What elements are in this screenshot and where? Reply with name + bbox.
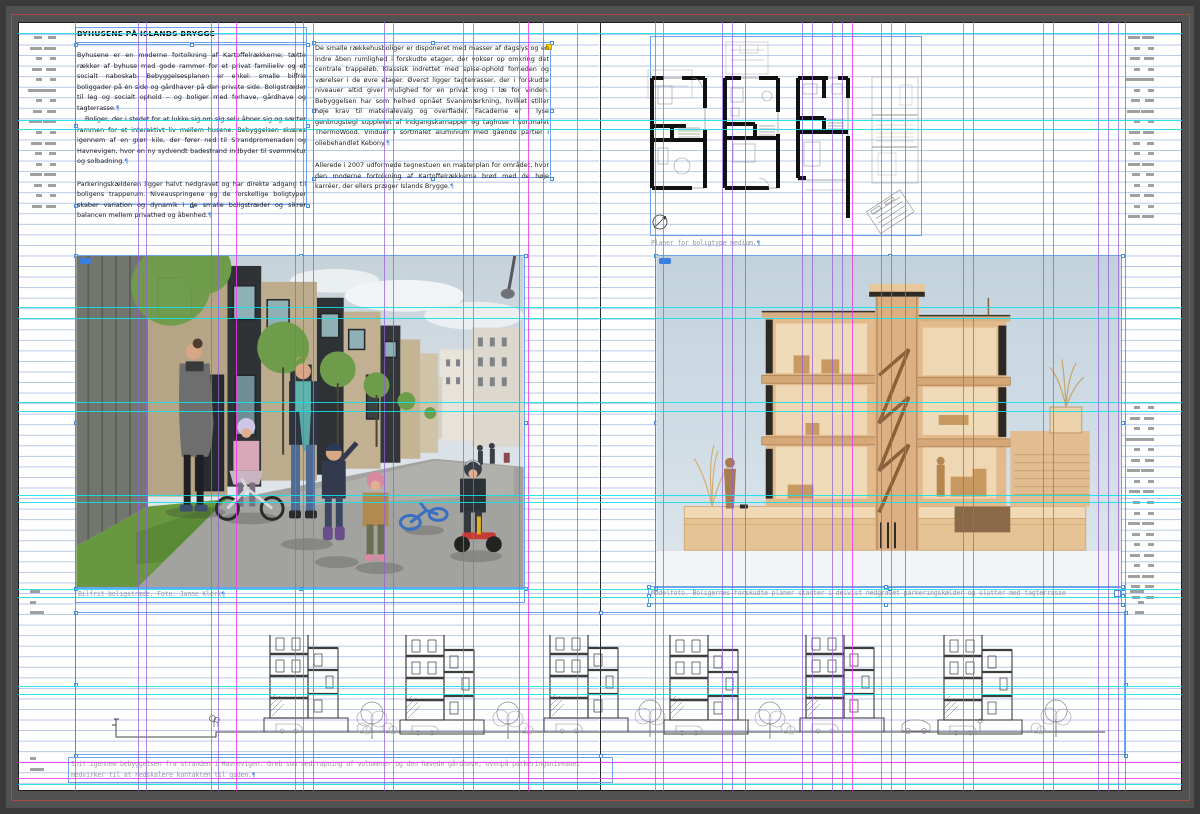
ruler-guide-vertical[interactable] <box>905 22 906 791</box>
body-text-col1[interactable]: Byhusene er en moderne fortolkning af Ka… <box>77 50 306 222</box>
marginalia-text-line <box>44 173 56 176</box>
marginalia-text-line <box>1148 184 1154 187</box>
ruler-guide-vertical[interactable] <box>295 22 296 791</box>
link-badge-right-photo[interactable] <box>659 258 671 264</box>
ruler-guide-vertical[interactable] <box>577 22 578 791</box>
ruler-guide-vertical[interactable] <box>211 22 212 791</box>
ruler-guide-vertical[interactable] <box>519 22 520 791</box>
ruler-guide-vertical[interactable] <box>812 22 813 791</box>
marginalia-text-line <box>1134 427 1140 430</box>
marginalia-text-line <box>1131 459 1140 462</box>
frame-selection-handle[interactable] <box>306 204 310 208</box>
marginalia-text-line <box>49 152 56 155</box>
marginalia-text-line <box>1144 417 1154 420</box>
ruler-guide-vertical[interactable] <box>303 22 304 791</box>
ruler-guide-horizontal[interactable] <box>18 694 1182 695</box>
ruler-guide-horizontal[interactable] <box>18 318 1182 319</box>
marginalia-text-line <box>30 47 42 50</box>
marginalia-text-line <box>1134 512 1140 515</box>
marginalia-text-line <box>36 163 42 166</box>
marginalia-text-line <box>28 89 42 92</box>
marginalia-text-line <box>1126 78 1140 81</box>
marginalia-text-line <box>1126 438 1140 441</box>
body-paragraph: Boliger, der i stedet for at lukke sig o… <box>77 114 306 168</box>
frame-selection-handle[interactable] <box>599 611 603 615</box>
marginalia-text-line <box>1132 533 1140 536</box>
marginalia-text-line <box>1144 554 1154 557</box>
body-paragraph: Parkeringskælderen ligger halvt nedgrave… <box>77 179 306 222</box>
section-elevation-drawing <box>110 635 1105 755</box>
marginalia-text-line <box>50 99 56 102</box>
ruler-guide-horizontal[interactable] <box>18 402 1182 403</box>
marginalia-text-line <box>1127 469 1140 472</box>
ruler-guide-vertical[interactable] <box>543 22 544 791</box>
marginalia-text-line <box>1127 110 1140 113</box>
ruler-guide-vertical[interactable] <box>313 22 314 791</box>
marginalia-text-line <box>1129 490 1140 493</box>
ruler-guide-horizontal[interactable] <box>18 762 1182 763</box>
marginalia-text-line <box>30 768 44 771</box>
frame-selection-handle[interactable] <box>190 43 194 47</box>
marginalia-text-line <box>1134 406 1140 409</box>
marginalia-text-line <box>1128 36 1140 39</box>
marginalia-text-line <box>50 78 56 81</box>
ruler-guide-vertical[interactable] <box>732 22 733 791</box>
caption-plans[interactable]: Planer for boligtype medium.¶ <box>651 239 911 247</box>
marginalia-text-line <box>1144 194 1154 197</box>
marginalia-text-line <box>1134 47 1140 50</box>
marginalia-text-line <box>1131 99 1140 102</box>
floor-plans-drawing <box>640 40 920 240</box>
ruler-guide-vertical[interactable] <box>138 22 139 791</box>
ruler-guide-horizontal[interactable] <box>18 33 1182 34</box>
ruler-guide-vertical[interactable] <box>842 22 843 791</box>
marginalia-text-line <box>50 163 56 166</box>
ruler-guide-vertical[interactable] <box>663 22 664 791</box>
marginalia-text-line <box>1141 469 1154 472</box>
marginalia-text-line <box>1143 131 1154 134</box>
marginalia-text-line <box>1134 184 1140 187</box>
marginalia-text-line <box>1146 173 1154 176</box>
marginalia-text-line <box>1128 163 1140 166</box>
ruler-guide-vertical[interactable] <box>722 22 723 791</box>
marginalia-text-line <box>36 194 42 197</box>
ruler-guide-vertical[interactable] <box>393 22 394 791</box>
marginalia-text-line <box>1148 68 1154 71</box>
marginalia-text-line <box>1134 543 1140 546</box>
ruler-guide-vertical[interactable] <box>745 22 746 791</box>
marginalia-text-line <box>1141 110 1154 113</box>
marginalia-text-line <box>31 142 42 145</box>
ruler-guide-vertical[interactable] <box>1118 22 1119 791</box>
body-paragraph: De smalle rækkehusboliger er disponeret … <box>315 43 549 149</box>
marginalia-text-line <box>1140 438 1154 441</box>
ruler-guide-vertical[interactable] <box>1053 22 1054 791</box>
marginalia-text-line <box>1148 448 1154 451</box>
marginalia-text-line <box>1130 590 1144 593</box>
marginalia-text-line <box>48 184 56 187</box>
marginalia-text-line <box>36 78 42 81</box>
frame-selection-handle[interactable] <box>647 603 651 607</box>
frame-selection-handle[interactable] <box>550 177 554 181</box>
ruler-guide-horizontal[interactable] <box>18 778 1182 779</box>
marginalia-text-line <box>30 590 40 593</box>
marginalia-text-line <box>1134 152 1140 155</box>
ruler-guide-vertical[interactable] <box>973 22 974 791</box>
marginalia-text-line <box>1131 585 1140 588</box>
ruler-guide-vertical[interactable] <box>891 22 892 791</box>
ruler-guide-vertical[interactable] <box>802 22 803 791</box>
marginalia-text-line <box>1143 490 1154 493</box>
marginalia-text-line <box>30 757 36 760</box>
link-badge-left-photo[interactable] <box>79 258 91 264</box>
body-paragraph: Allerede i 2007 udformede tegnestuen en … <box>315 160 549 193</box>
marginalia-text-line <box>1140 78 1154 81</box>
ruler-guide-horizontal[interactable] <box>18 589 1182 590</box>
body-text-col2[interactable]: De smalle rækkehusboliger er disponeret … <box>315 43 549 193</box>
marginalia-text-line <box>36 131 42 134</box>
ruler-guide-horizontal[interactable] <box>18 120 1182 121</box>
marginalia-text-line <box>1148 205 1154 208</box>
hidden-character: ¶ <box>450 183 454 190</box>
marginalia-text-line <box>1142 36 1154 39</box>
marginalia-text-line <box>1147 142 1154 145</box>
marginalia-text-line <box>1130 57 1140 60</box>
ruler-guide-vertical[interactable] <box>963 22 964 791</box>
layout-app-canvas: BYHUSENE PÅ ISLANDS BRYGGE Byhusene er e… <box>0 0 1200 814</box>
frame-selection-handle[interactable] <box>306 43 310 47</box>
marginalia-text-line <box>34 36 42 39</box>
marginalia-text-line <box>1134 89 1140 92</box>
marginalia-text-line <box>1145 459 1154 462</box>
ruler-guide-vertical[interactable] <box>1043 22 1044 791</box>
ruler-guide-horizontal[interactable] <box>18 686 1182 687</box>
marginalia-text-line <box>1148 512 1154 515</box>
marginalia-text-line <box>1148 406 1154 409</box>
marginalia-text-line <box>1130 194 1140 197</box>
marginalia-text-line <box>1133 142 1140 145</box>
ruler-guide-horizontal[interactable] <box>18 597 1182 598</box>
marginalia-text-line <box>1148 152 1154 155</box>
ruler-guide-vertical[interactable] <box>473 22 474 791</box>
hidden-character: ¶ <box>116 105 120 112</box>
marginalia-text-line <box>1135 611 1144 614</box>
marginalia-text-line <box>1128 575 1140 578</box>
hidden-character: ¶ <box>124 158 128 165</box>
marginalia-text-line <box>48 36 56 39</box>
marginalia-text-line <box>1134 480 1140 483</box>
marginalia-text-line <box>1144 57 1154 60</box>
marginalia-text-line <box>33 110 42 113</box>
marginalia-text-line <box>36 99 42 102</box>
ruler-guide-horizontal[interactable] <box>18 411 1182 412</box>
ruler-guide-vertical[interactable] <box>528 22 529 791</box>
ruler-guide-vertical[interactable] <box>218 22 219 791</box>
marginalia-text-line <box>1148 480 1154 483</box>
frame-selection-handle[interactable] <box>550 109 554 113</box>
marginalia-text-line <box>1142 575 1154 578</box>
marginalia-text-line <box>1129 131 1140 134</box>
ruler-guide-vertical[interactable] <box>75 22 76 791</box>
marginalia-text-line <box>32 68 42 71</box>
marginalia-text-line <box>1146 533 1154 536</box>
marginalia-text-line <box>1148 47 1154 50</box>
marginalia-text-line <box>1142 522 1154 525</box>
ruler-guide-horizontal[interactable] <box>18 129 1182 130</box>
ruler-guide-vertical[interactable] <box>852 22 853 791</box>
ruler-guide-vertical[interactable] <box>1098 22 1099 791</box>
marginalia-text-line <box>50 57 56 60</box>
marginalia-text-line <box>1142 215 1154 218</box>
marginalia-text-line <box>42 89 56 92</box>
ruler-guide-vertical[interactable] <box>146 22 147 791</box>
ruler-guide-vertical[interactable] <box>1125 22 1126 791</box>
marginalia-text-line <box>1132 173 1140 176</box>
ruler-guide-horizontal[interactable] <box>18 495 1182 496</box>
marginalia-text-line <box>45 142 56 145</box>
ruler-guide-vertical[interactable] <box>881 22 882 791</box>
frame-selection-handle[interactable] <box>884 603 888 607</box>
frame-selection-handle[interactable] <box>306 124 310 128</box>
hidden-character: ¶ <box>386 140 390 147</box>
marginalia-text-line <box>47 110 56 113</box>
marginalia-text-line <box>1148 89 1154 92</box>
ruler-guide-vertical[interactable] <box>1108 22 1109 791</box>
marginalia-text-line <box>50 131 56 134</box>
marginalia-text-line <box>36 57 42 60</box>
ruler-guide-vertical[interactable] <box>463 22 464 791</box>
marginalia-text-line <box>46 68 56 71</box>
marginalia-text-line <box>1145 585 1154 588</box>
marginalia-text-line <box>1148 543 1154 546</box>
model-photo[interactable] <box>656 256 1121 587</box>
marginalia-text-line <box>1134 68 1140 71</box>
marginalia-text-line <box>1134 564 1140 567</box>
ruler-guide-horizontal[interactable] <box>18 502 1182 503</box>
marginalia-text-line <box>32 205 42 208</box>
marginalia-text-line <box>30 173 42 176</box>
marginalia-text-line <box>1134 448 1140 451</box>
marginalia-text-line <box>1138 601 1144 604</box>
marginalia-text-line <box>44 47 56 50</box>
marginalia-text-line <box>1130 554 1140 557</box>
ruler-guide-vertical[interactable] <box>236 22 237 791</box>
ruler-guide-vertical[interactable] <box>384 22 385 791</box>
ruler-guide-horizontal[interactable] <box>18 307 1182 308</box>
marginalia-text-line <box>35 152 42 155</box>
marginalia-text-line <box>50 194 56 197</box>
marginalia-text-line <box>1130 417 1140 420</box>
marginalia-text-line <box>1148 427 1154 430</box>
marginalia-text-line <box>34 184 42 187</box>
marginalia-text-line <box>46 205 56 208</box>
marginalia-text-line <box>1148 564 1154 567</box>
street-photo[interactable] <box>76 256 524 587</box>
marginalia-text-line <box>1128 522 1140 525</box>
ruler-guide-vertical[interactable] <box>655 22 656 791</box>
body-paragraph: Byhusene er en moderne fortolkning af Ka… <box>77 50 306 114</box>
marginalia-text-line <box>30 601 36 604</box>
ruler-guide-horizontal[interactable] <box>18 784 1182 785</box>
ruler-guide-vertical[interactable] <box>832 22 833 791</box>
marginalia-text-line <box>1145 99 1154 102</box>
marginalia-text-line <box>1128 215 1140 218</box>
marginalia-text-line <box>30 611 44 614</box>
marginalia-text-line <box>1134 205 1140 208</box>
marginalia-text-line <box>1142 163 1154 166</box>
